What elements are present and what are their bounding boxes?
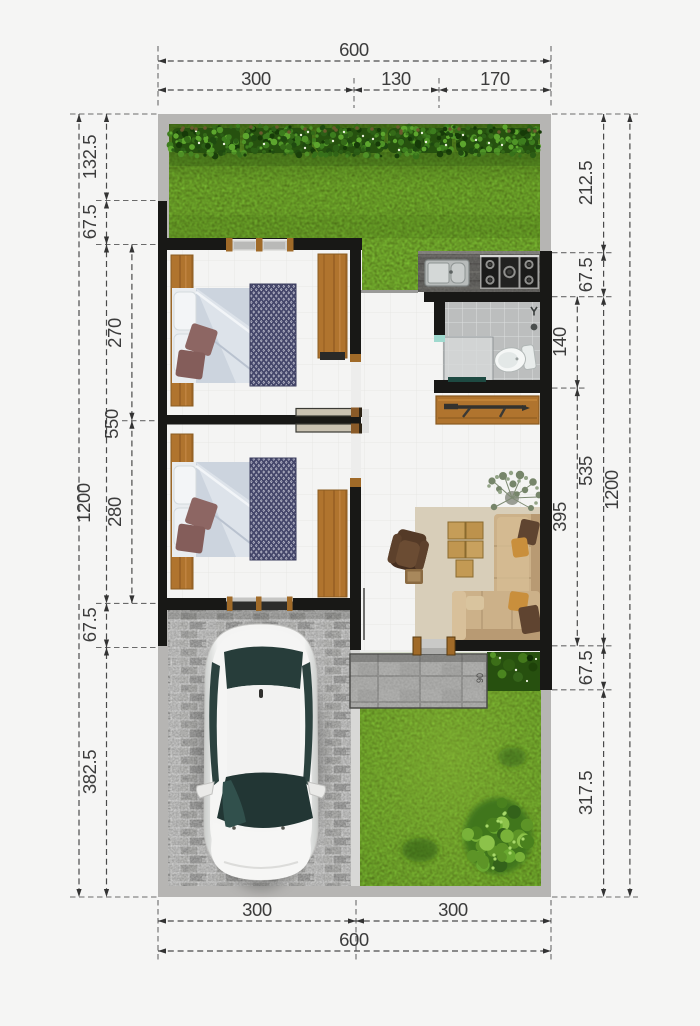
svg-text:317.5: 317.5 — [575, 771, 596, 815]
svg-text:395: 395 — [549, 502, 570, 532]
svg-text:140: 140 — [549, 327, 570, 357]
svg-text:300: 300 — [242, 899, 272, 920]
svg-text:130: 130 — [381, 68, 411, 89]
svg-text:212.5: 212.5 — [575, 161, 596, 205]
svg-text:132.5: 132.5 — [79, 135, 100, 179]
svg-text:67.5: 67.5 — [575, 651, 596, 686]
svg-text:1200: 1200 — [73, 483, 94, 523]
svg-text:382.5: 382.5 — [79, 750, 100, 794]
svg-text:67.5: 67.5 — [79, 205, 100, 240]
svg-text:280: 280 — [104, 497, 125, 527]
svg-text:300: 300 — [438, 899, 468, 920]
svg-text:90: 90 — [475, 673, 485, 683]
svg-text:270: 270 — [104, 318, 125, 348]
svg-text:1200: 1200 — [601, 470, 622, 510]
svg-text:67.5: 67.5 — [79, 608, 100, 643]
svg-text:600: 600 — [339, 929, 369, 950]
svg-text:535: 535 — [575, 456, 596, 486]
svg-text:67.5: 67.5 — [575, 258, 596, 293]
svg-text:550: 550 — [101, 409, 122, 439]
svg-text:600: 600 — [339, 39, 369, 60]
svg-text:170: 170 — [480, 68, 510, 89]
svg-text:300: 300 — [241, 68, 271, 89]
